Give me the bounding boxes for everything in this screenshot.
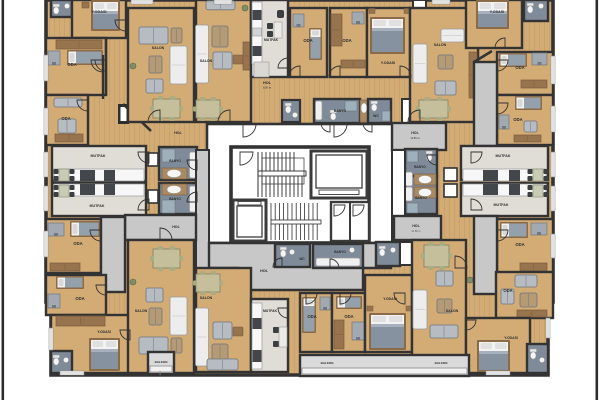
svg-text:BANYO: BANYO xyxy=(334,250,346,254)
svg-text:SALON: SALON xyxy=(200,59,213,63)
svg-text:ODA: ODA xyxy=(515,242,524,247)
svg-text:ODA: ODA xyxy=(67,62,76,67)
svg-text:ODA: ODA xyxy=(344,314,353,319)
svg-text:HOL: HOL xyxy=(260,269,269,273)
svg-text:WC: WC xyxy=(299,257,305,261)
svg-text:ODA: ODA xyxy=(303,38,312,43)
svg-text:HOL: HOL xyxy=(411,131,419,135)
svg-text:Y.ODASI: Y.ODASI xyxy=(91,10,106,14)
svg-text:Y.ODASI: Y.ODASI xyxy=(490,10,504,14)
svg-text:WC: WC xyxy=(373,114,379,118)
svg-text:9.20 m: 9.20 m xyxy=(263,86,272,90)
svg-text:MUTFAK: MUTFAK xyxy=(263,309,278,313)
svg-text:ODA: ODA xyxy=(75,296,84,301)
svg-text:ODA: ODA xyxy=(513,117,522,122)
svg-text:BALKON: BALKON xyxy=(155,360,168,364)
svg-text:ODA: ODA xyxy=(73,241,82,246)
svg-text:MUTFAK: MUTFAK xyxy=(496,154,511,158)
svg-text:ODA: ODA xyxy=(342,38,351,43)
svg-text:SALON: SALON xyxy=(434,43,447,47)
svg-text:11.80 m: 11.80 m xyxy=(411,229,420,233)
svg-text:HOL: HOL xyxy=(263,81,272,85)
svg-text:BANYO: BANYO xyxy=(414,165,426,169)
svg-text:MUTFAK: MUTFAK xyxy=(91,154,106,158)
svg-text:BANYO: BANYO xyxy=(169,197,181,201)
svg-text:Y.ODASI: Y.ODASI xyxy=(97,330,111,334)
svg-text:BALKON: BALKON xyxy=(321,361,334,365)
svg-text:BANYO: BANYO xyxy=(334,109,347,113)
svg-text:SALON: SALON xyxy=(446,309,459,313)
svg-text:HOL: HOL xyxy=(174,131,182,135)
svg-text:BALKON: BALKON xyxy=(435,361,448,365)
svg-text:ODA: ODA xyxy=(61,116,70,121)
svg-text:HOL: HOL xyxy=(172,225,180,229)
svg-text:SALON: SALON xyxy=(135,309,148,313)
svg-text:Y.ODASI: Y.ODASI xyxy=(504,336,518,340)
svg-text:Y.ODASI: Y.ODASI xyxy=(383,297,397,301)
svg-text:BANYO: BANYO xyxy=(415,196,427,200)
svg-text:SALON: SALON xyxy=(152,46,165,50)
svg-text:MUTFAK: MUTFAK xyxy=(494,203,509,207)
svg-text:ODA: ODA xyxy=(515,65,524,70)
svg-text:MUTFAK: MUTFAK xyxy=(90,204,105,208)
svg-text:Y.ODASI: Y.ODASI xyxy=(381,61,395,65)
svg-text:ODA: ODA xyxy=(503,288,512,293)
svg-text:SALON: SALON xyxy=(200,296,213,300)
svg-text:BANYO: BANYO xyxy=(169,159,181,163)
svg-text:MUTFAK: MUTFAK xyxy=(264,38,279,42)
svg-text:HOL: HOL xyxy=(412,224,420,228)
svg-text:11.80 m: 11.80 m xyxy=(410,136,420,140)
svg-text:ODA: ODA xyxy=(307,314,316,319)
